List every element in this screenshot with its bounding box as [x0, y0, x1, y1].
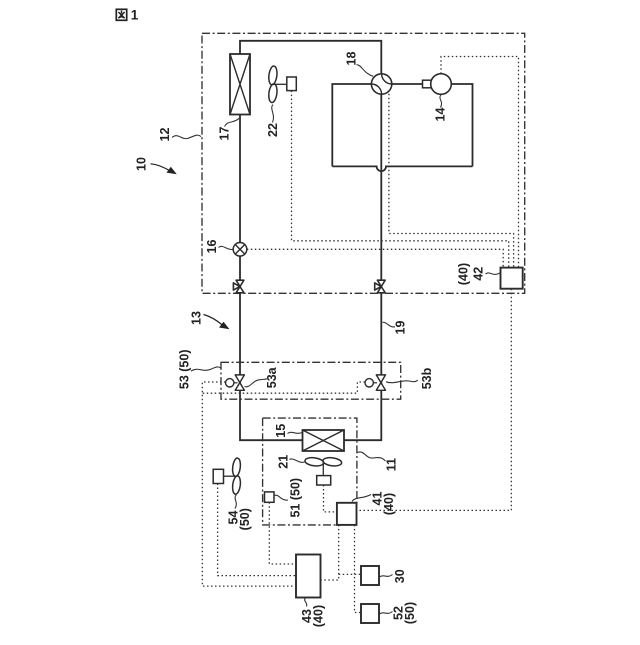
svg-text:30: 30: [393, 569, 407, 583]
svg-text:(50): (50): [403, 602, 417, 624]
svg-text:22: 22: [266, 123, 280, 137]
svg-text:19: 19: [394, 321, 408, 335]
svg-text:16: 16: [205, 240, 219, 254]
svg-text:14: 14: [434, 108, 448, 122]
svg-text:12: 12: [158, 128, 172, 142]
svg-text:10: 10: [135, 157, 149, 171]
svg-text:(50): (50): [238, 508, 252, 530]
svg-text:17: 17: [218, 127, 232, 141]
svg-text:18: 18: [344, 52, 358, 66]
svg-text:53 (50): 53 (50): [178, 349, 192, 389]
svg-text:13: 13: [189, 311, 203, 325]
svg-text:(40): (40): [311, 605, 325, 627]
svg-text:51 (50): 51 (50): [289, 478, 303, 518]
svg-text:15: 15: [274, 424, 288, 438]
svg-text:11: 11: [385, 458, 399, 471]
svg-text:21: 21: [276, 455, 290, 469]
svg-text:1: 1: [131, 8, 139, 23]
svg-text:53a: 53a: [265, 366, 279, 388]
svg-text:(40): (40): [382, 493, 396, 515]
svg-text:(40): (40): [456, 263, 470, 285]
svg-text:42: 42: [472, 267, 486, 281]
svg-text:53b: 53b: [420, 367, 434, 389]
